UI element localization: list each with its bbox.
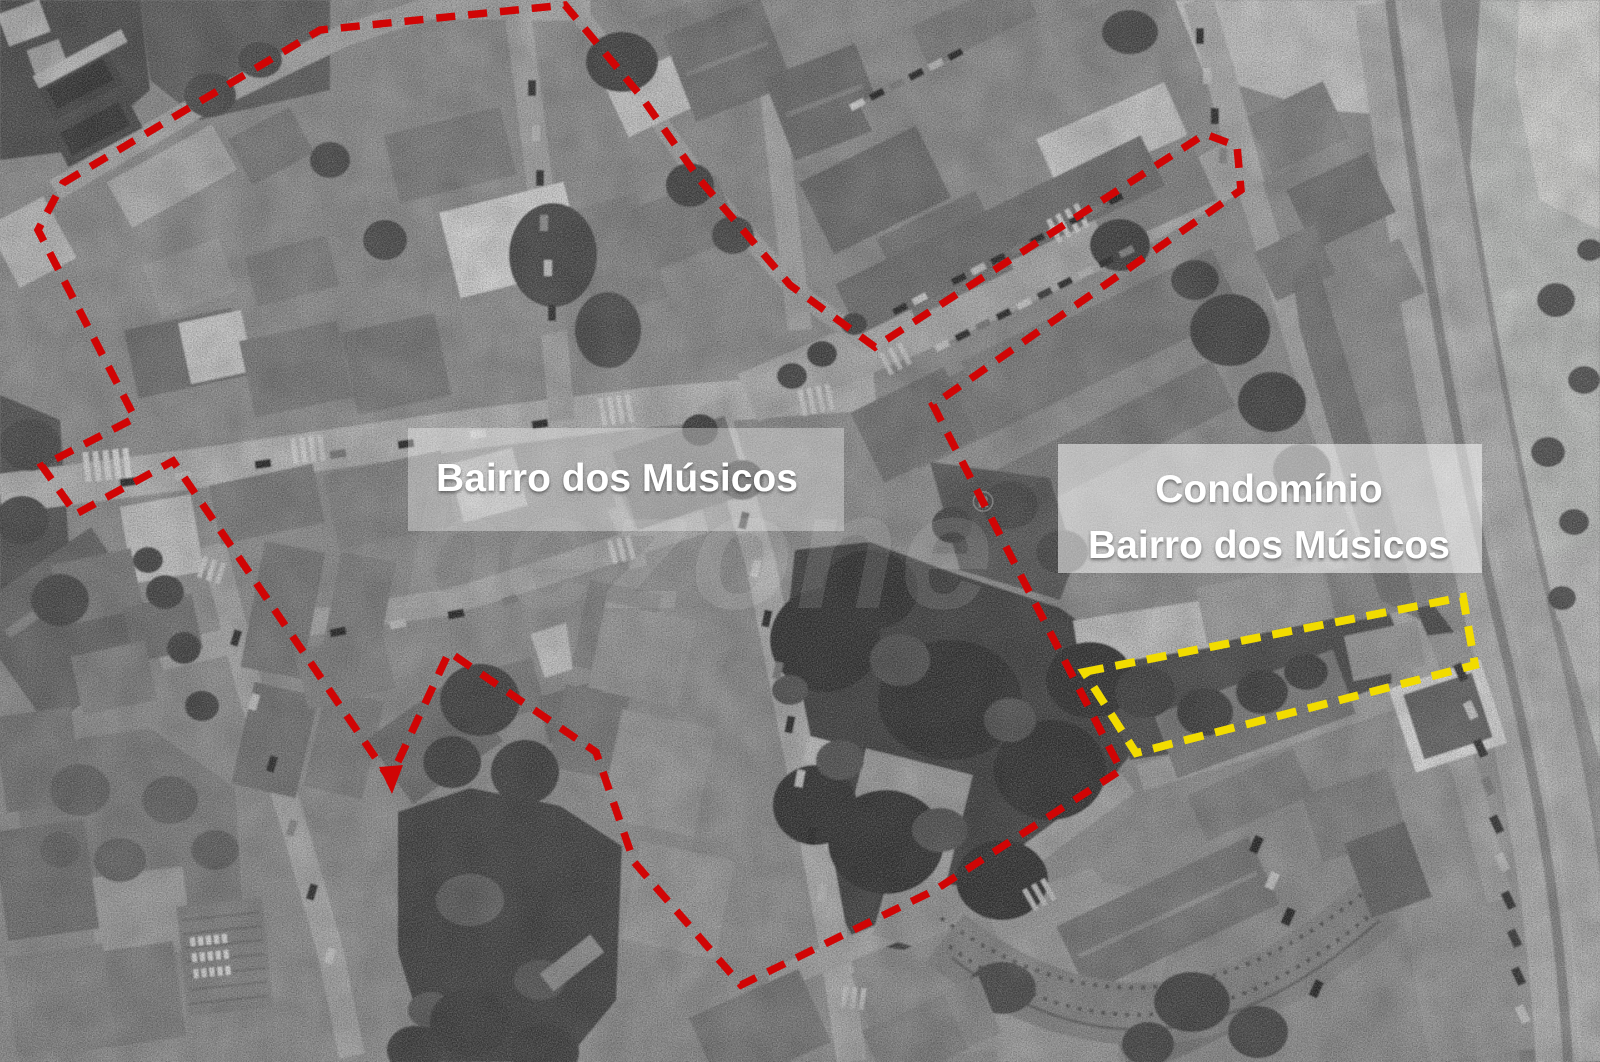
svg-text:Bairro dos Músicos: Bairro dos Músicos xyxy=(436,457,798,500)
svg-text:Condomínio: Condomínio xyxy=(1155,468,1382,511)
svg-text:Bairro dos Músicos: Bairro dos Músicos xyxy=(1088,524,1450,567)
